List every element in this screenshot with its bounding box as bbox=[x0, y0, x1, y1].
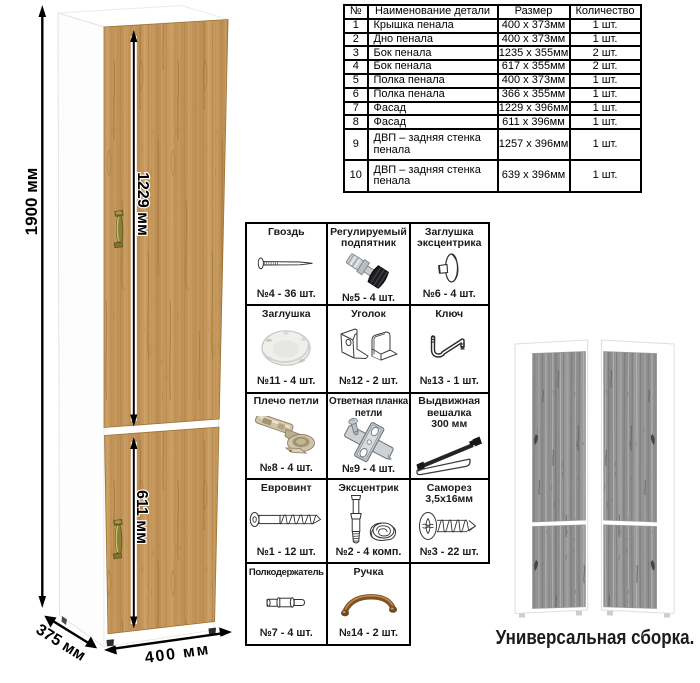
svg-text:1900 мм: 1900 мм bbox=[22, 168, 41, 236]
svg-text:611 мм: 611 мм bbox=[133, 490, 150, 544]
svg-text:1229 мм: 1229 мм bbox=[134, 172, 151, 236]
svg-text:400 мм: 400 мм bbox=[144, 641, 211, 667]
